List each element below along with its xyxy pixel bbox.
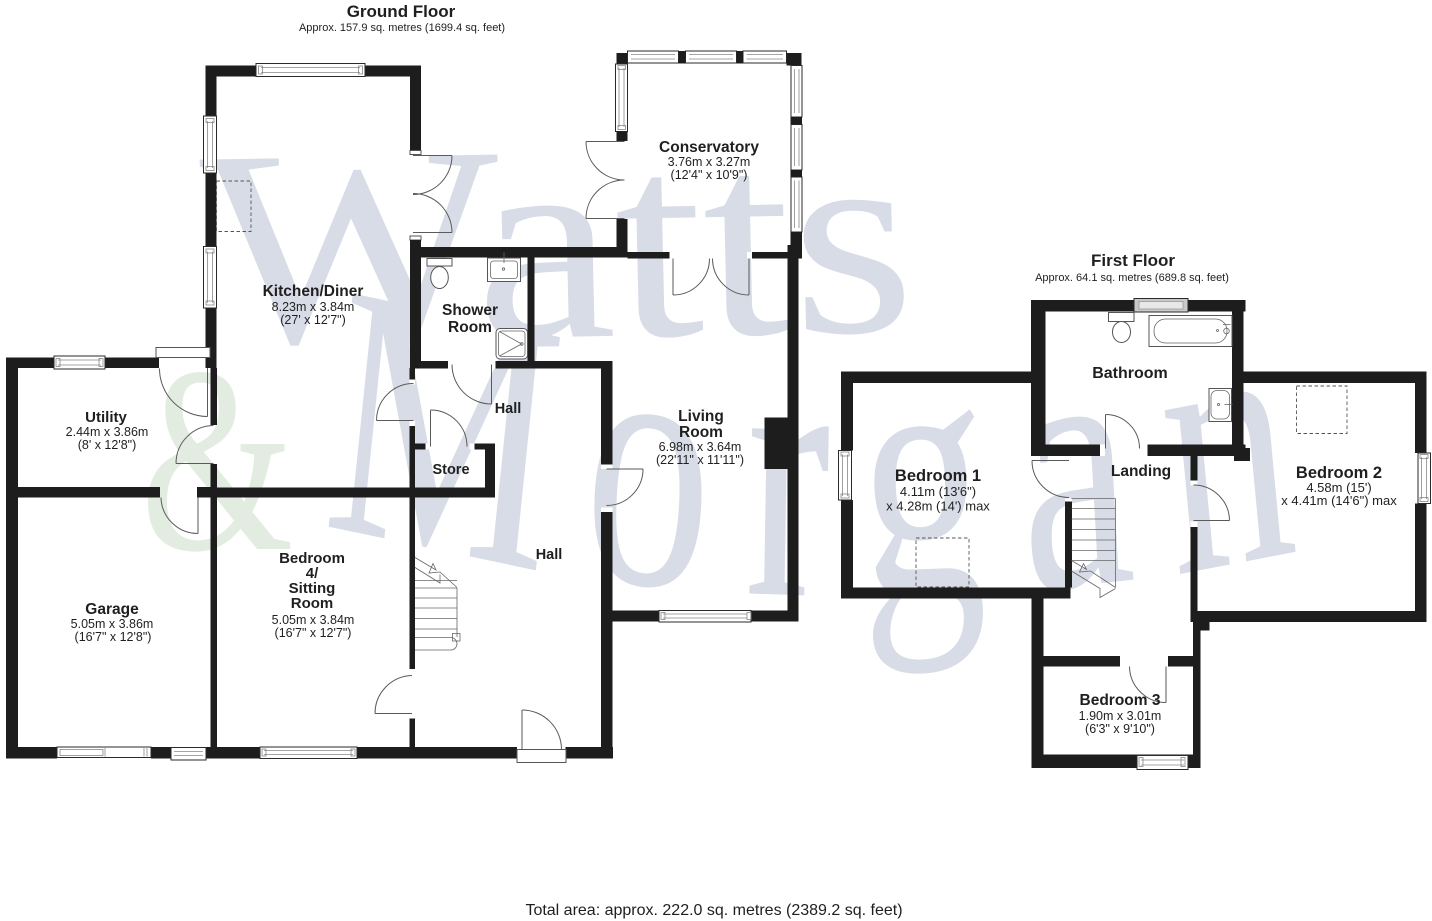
svg-text:6.98m x 3.64m: 6.98m x 3.64m	[659, 440, 742, 454]
svg-text:4.11m (13'6"): 4.11m (13'6")	[900, 484, 976, 499]
svg-text:(12'4" x 10'9"): (12'4" x 10'9")	[671, 168, 748, 182]
svg-text:x 4.28m (14') max: x 4.28m (14') max	[886, 499, 990, 514]
svg-text:Approx. 64.1 sq. metres (689.8: Approx. 64.1 sq. metres (689.8 sq. feet)	[1035, 272, 1229, 284]
svg-text:5.05m x 3.84m: 5.05m x 3.84m	[272, 613, 355, 627]
svg-text:Garage: Garage	[85, 601, 139, 618]
svg-text:Approx. 157.9 sq. metres (1699: Approx. 157.9 sq. metres (1699.4 sq. fee…	[299, 22, 505, 34]
svg-text:(8' x 12'8"): (8' x 12'8")	[78, 438, 137, 452]
svg-text:Bedroom 1: Bedroom 1	[895, 467, 981, 485]
svg-text:Room: Room	[679, 424, 723, 441]
svg-text:(6'3" x 9'10"): (6'3" x 9'10")	[1085, 722, 1155, 736]
svg-text:x 4.41m (14'6") max: x 4.41m (14'6") max	[1281, 493, 1397, 508]
svg-text:5.05m x 3.86m: 5.05m x 3.86m	[71, 617, 154, 631]
svg-text:Bathroom: Bathroom	[1092, 365, 1168, 382]
svg-text:Room: Room	[448, 319, 492, 336]
svg-text:8.23m x 3.84m: 8.23m x 3.84m	[272, 300, 355, 314]
svg-text:(16'7" x 12'8"): (16'7" x 12'8")	[75, 630, 152, 644]
svg-text:First Floor: First Floor	[1091, 251, 1175, 270]
svg-text:Shower: Shower	[442, 302, 498, 319]
svg-text:Hall: Hall	[536, 547, 563, 563]
svg-text:2.44m x 3.86m: 2.44m x 3.86m	[66, 425, 149, 439]
svg-text:Store: Store	[432, 462, 469, 478]
svg-text:Room: Room	[291, 595, 334, 612]
svg-text:Landing: Landing	[1111, 463, 1171, 480]
svg-text:(27' x 12'7"): (27' x 12'7")	[280, 313, 346, 327]
svg-text:Kitchen/Diner: Kitchen/Diner	[263, 283, 364, 300]
svg-text:Total area: approx. 222.0 sq.: Total area: approx. 222.0 sq. metres (23…	[525, 902, 902, 919]
svg-text:Conservatory: Conservatory	[659, 139, 759, 156]
svg-text:1.90m x 3.01m: 1.90m x 3.01m	[1079, 709, 1162, 723]
svg-text:(16'7" x 12'7"): (16'7" x 12'7")	[275, 626, 352, 640]
svg-text:Bedroom 3: Bedroom 3	[1080, 692, 1161, 709]
svg-text:Living: Living	[678, 408, 724, 425]
svg-text:Utility: Utility	[85, 409, 127, 426]
svg-text:Ground Floor: Ground Floor	[347, 2, 456, 21]
svg-text:(22'11" x 11'11"): (22'11" x 11'11")	[656, 453, 744, 467]
svg-text:3.76m x 3.27m: 3.76m x 3.27m	[668, 155, 751, 169]
svg-text:Hall: Hall	[495, 401, 522, 417]
